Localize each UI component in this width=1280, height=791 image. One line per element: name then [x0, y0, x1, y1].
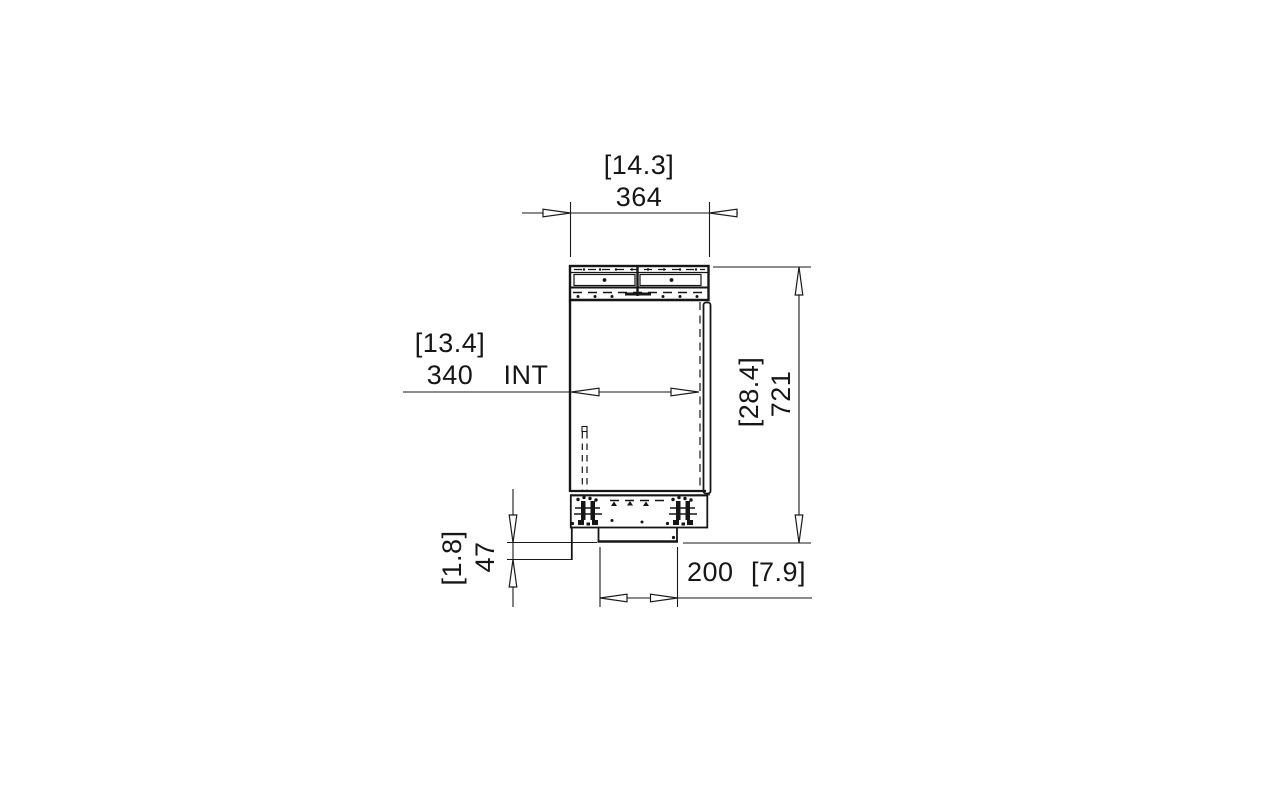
- dim-base-height-inches-label: [1.8]: [437, 530, 467, 585]
- dim-internal-width-inches-label: [13.4]: [415, 328, 486, 358]
- burner-tray-section: [570, 266, 709, 300]
- right-mount-bracket: [666, 496, 697, 526]
- dim-overall-height-mm-label: 721: [766, 371, 796, 418]
- right-glass-panel: [704, 303, 711, 494]
- dim-top-width-inches-label: [14.3]: [604, 150, 675, 180]
- base-box: [572, 528, 678, 561]
- dim-top-width: [14.3] 364: [522, 150, 738, 257]
- dim-base-width-mm-label: 200: [687, 557, 734, 587]
- dim-internal-width-suffix-label: INT: [504, 360, 549, 390]
- dim-top-width-mm-label: 364: [616, 182, 663, 212]
- technical-drawing-canvas: [14.3] 364 [13.4] 340 INT [28.4] 721 [1.…: [0, 0, 1280, 791]
- left-mount-bracket: [571, 496, 602, 526]
- dim-internal-width: [13.4] 340 INT: [403, 328, 699, 396]
- mounting-band: [571, 496, 708, 528]
- dim-internal-width-mm-label: 340: [427, 360, 474, 390]
- firebox-body: [570, 300, 711, 495]
- burner-tray-top-dots: [583, 268, 697, 270]
- dim-base-width: 200 [7.9]: [600, 547, 812, 607]
- dim-overall-height-inches-label: [28.4]: [734, 357, 764, 428]
- dim-overall-height: [28.4] 721: [683, 267, 811, 543]
- dim-base-height: [1.8] 47: [437, 489, 597, 607]
- dim-base-width-inches-label: [7.9]: [751, 557, 806, 587]
- dim-base-height-mm-label: 47: [470, 541, 500, 572]
- technical-drawing-page: [14.3] 364 [13.4] 340 INT [28.4] 721 [1.…: [0, 0, 1280, 791]
